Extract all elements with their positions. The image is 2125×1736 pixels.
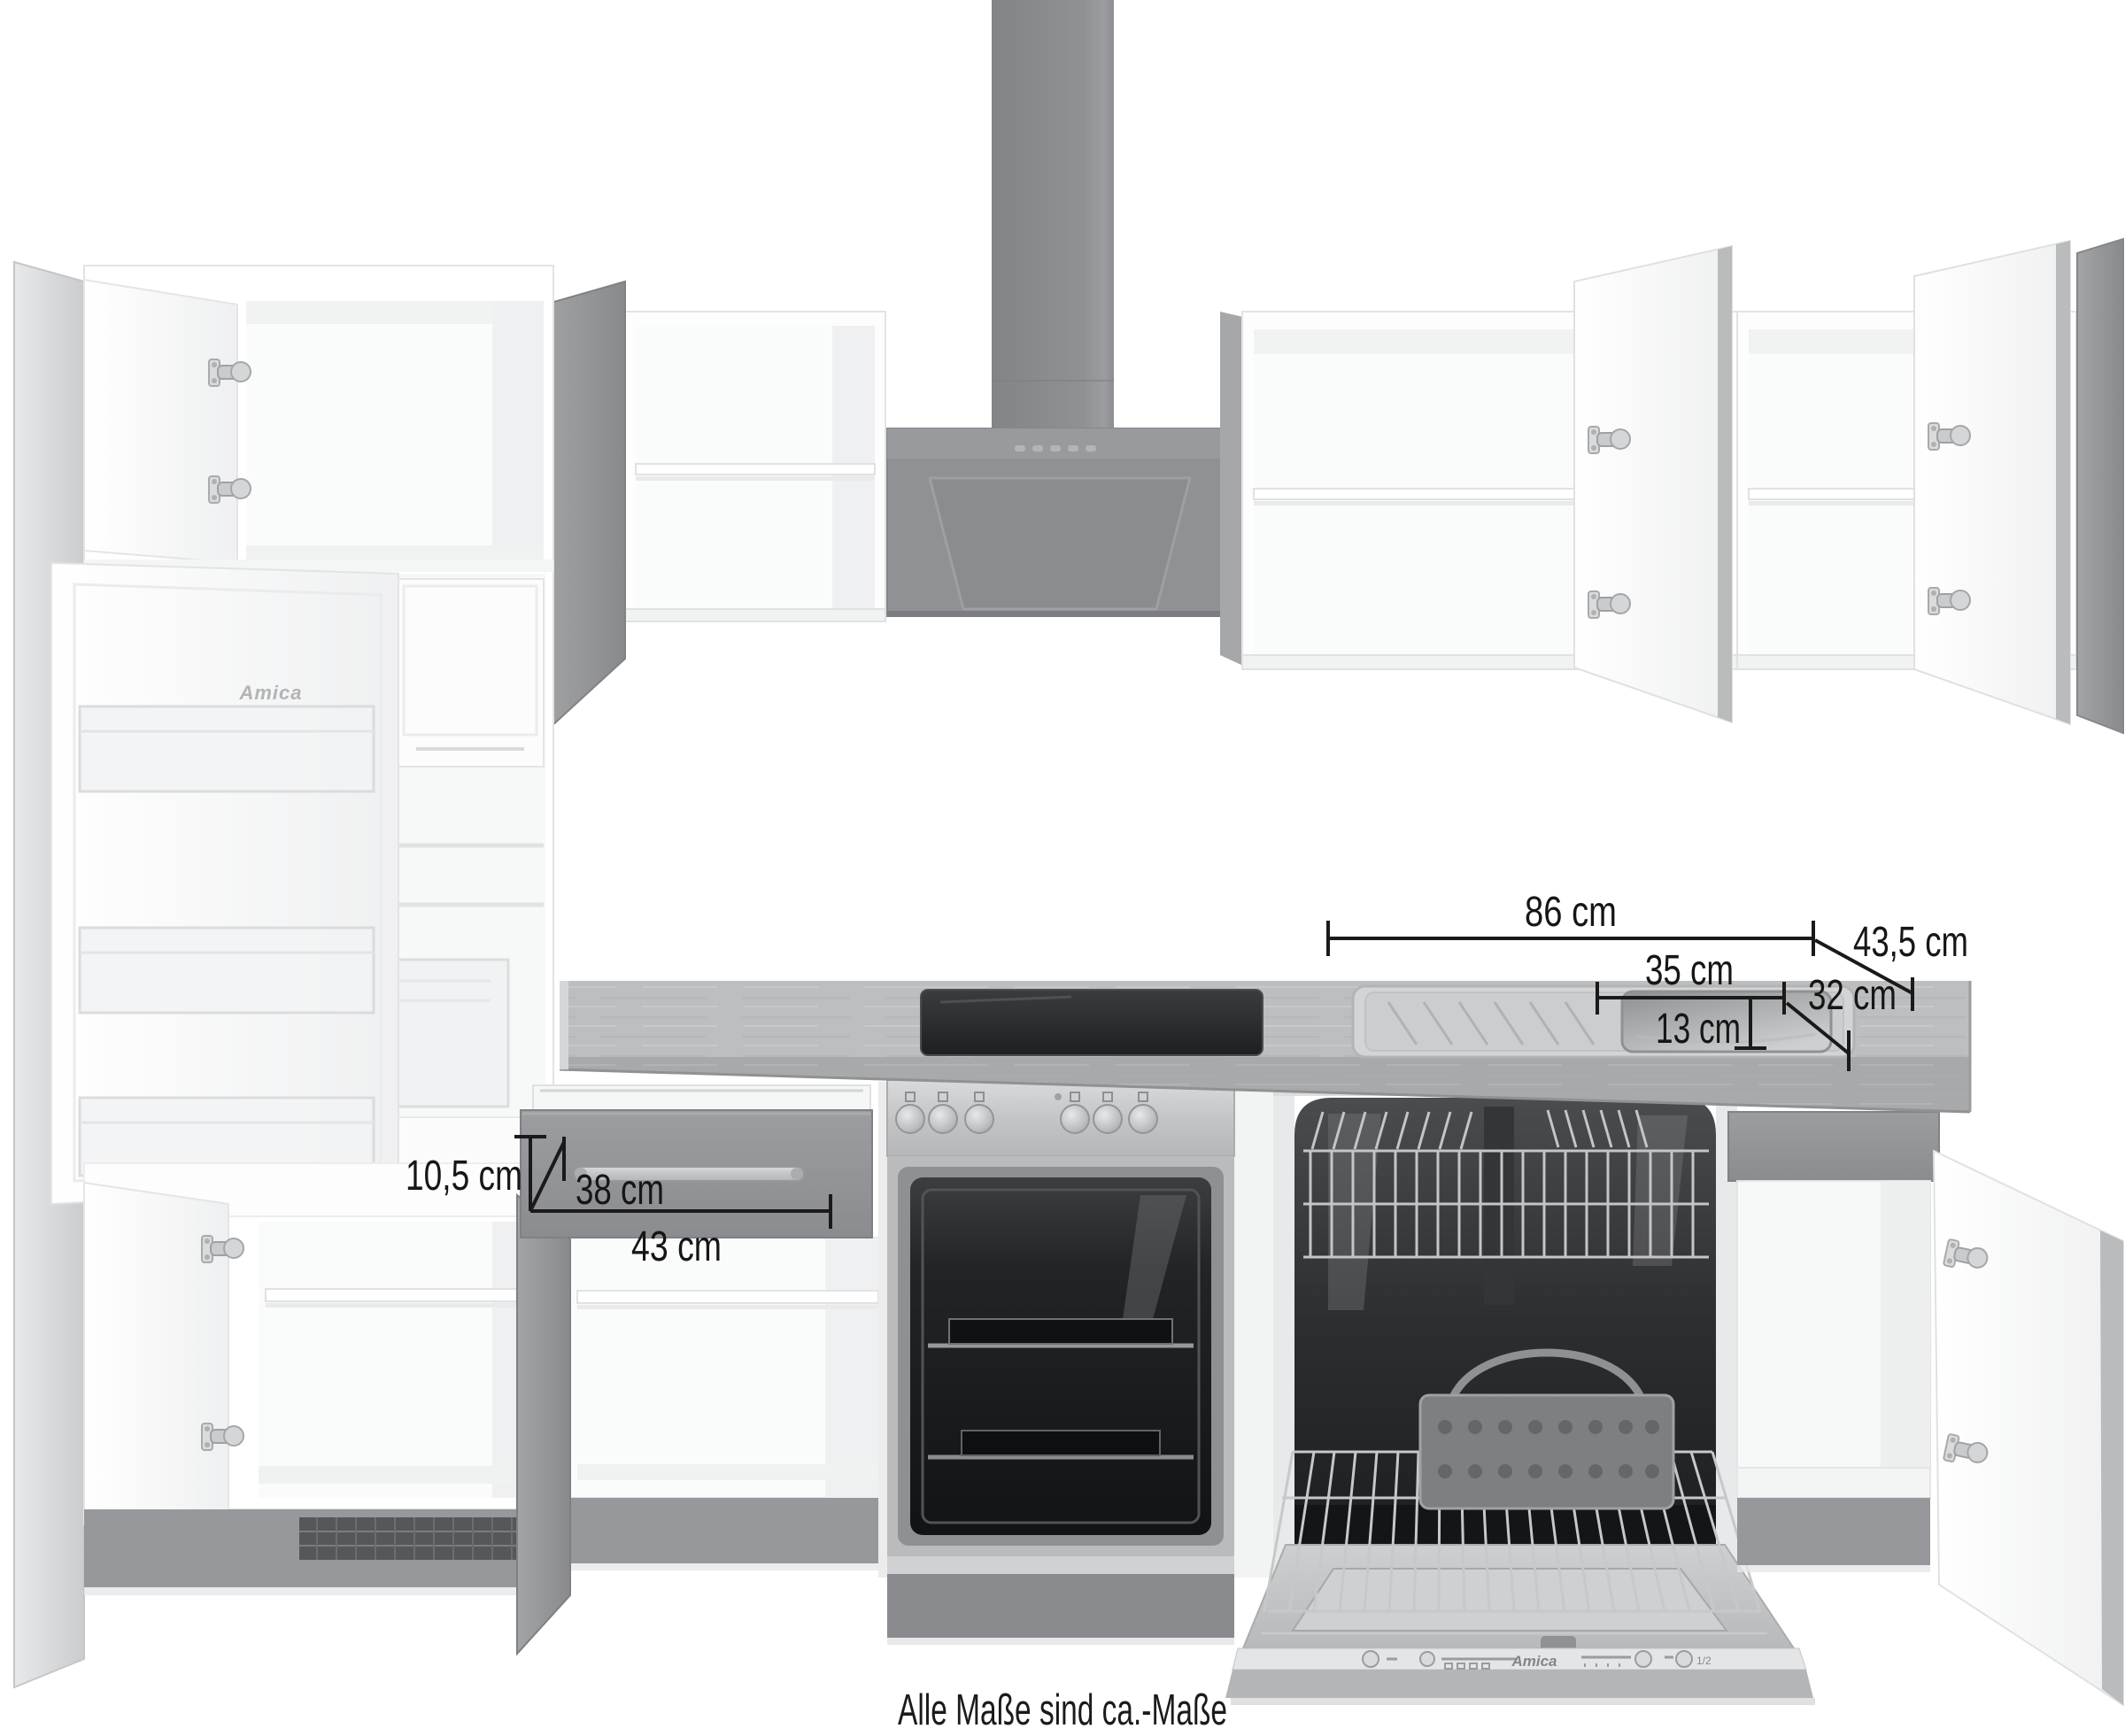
sink-cabinet-plinth [1737, 1498, 1930, 1565]
oven-sill [887, 1556, 1234, 1574]
base-cabinet-floor [577, 1464, 878, 1480]
sink-cabinet-shading [1881, 1181, 1930, 1468]
top-compartment-shading [492, 301, 544, 559]
oven-knob [1061, 1105, 1089, 1133]
lower-compartment-shelf [266, 1289, 544, 1301]
base-cabinet-door-gray-open [517, 1195, 570, 1654]
wall-cabinet-end-panel-gray [2077, 239, 2123, 733]
wall-cabinet-b-shelf [1749, 489, 1926, 499]
sink-cabinet-floor [1737, 1468, 1930, 1498]
lower-compartment-floor [259, 1466, 544, 1484]
fridge-brand-logo: Amica [238, 682, 302, 704]
floor-shadow [887, 1638, 1234, 1645]
power-button [1363, 1651, 1379, 1667]
worktop-left-cap [560, 981, 568, 1069]
cabinet-b-ceiling [1749, 329, 1926, 354]
door-bottom-edge [1225, 1670, 1813, 1698]
dim-handle-width-label: 38 cm [576, 1167, 664, 1214]
hood-bottom-edge [887, 611, 1232, 617]
hood-filter-panel [930, 478, 1190, 609]
kitchen-scene: Amica [0, 0, 2125, 1736]
kitchen-product-image: Amica [0, 0, 2125, 1736]
fridge: Amica [51, 563, 545, 1204]
cabinet-side-gray [1220, 312, 1243, 666]
wall-cabinet-left-shelf [636, 464, 875, 475]
dim-drawer-height-label: 10,5 cm [406, 1153, 522, 1200]
tall-unit: Amica [14, 262, 553, 1687]
base-cabinet-plinth [567, 1498, 878, 1563]
wall-cabinet-b-door [1914, 241, 2070, 724]
baking-tray-lower [962, 1431, 1160, 1455]
half-load-label: 1/2 [1696, 1655, 1712, 1667]
baking-tray-upper [949, 1319, 1172, 1344]
oven-plinth [887, 1574, 1234, 1638]
shelf-shadow [577, 1305, 878, 1309]
program-button [1420, 1652, 1434, 1666]
cabinet-partition [1234, 1082, 1275, 1578]
freezer-compartment [397, 579, 544, 767]
shelf-shadow [1254, 501, 1574, 505]
shelf-shadow [636, 476, 875, 481]
handle-end [791, 1168, 803, 1180]
sink-cabinet-front-panel-gray [1728, 1112, 1939, 1181]
half-load-button [1676, 1651, 1692, 1667]
oven-knob [1129, 1105, 1157, 1133]
fridge-door-bins [80, 706, 374, 1176]
wall-cabinet-a-shelf [1254, 489, 1574, 499]
dim-worktop-depth-label: 43,5 cm [1853, 919, 1968, 966]
dim-basin-depth-label: 32 cm [1808, 972, 1897, 1019]
delay-button [1635, 1651, 1651, 1667]
oven-knob [896, 1105, 924, 1133]
dim-worktop-width-label: 86 cm [1525, 889, 1617, 936]
wall-cabinets-right [1220, 239, 2123, 733]
top-compartment-door [84, 280, 237, 563]
oven-knob [929, 1105, 957, 1133]
door-a-edge-band [1718, 246, 1732, 722]
sink-door-edge-band [2100, 1231, 2123, 1705]
floor-shadow [84, 1587, 553, 1595]
base-cabinet-shelf [577, 1291, 878, 1303]
indicator-light [1055, 1093, 1062, 1100]
dim-basin-inner-depth-label: 13 cm [1656, 1006, 1741, 1053]
oven [878, 1080, 1275, 1645]
floor-shadow [1737, 1565, 1930, 1572]
top-compartment-bottom [246, 545, 544, 559]
spray-tower [1484, 1107, 1514, 1305]
dim-basin-width-label: 35 cm [1645, 947, 1734, 994]
tub-bottom-shadow [1294, 1505, 1716, 1545]
wall-cabinet-a-door [1574, 246, 1732, 722]
caption-text: Alle Maße sind ca.-Maße [898, 1686, 1227, 1734]
dishwasher-brand-logo: Amica [1511, 1653, 1557, 1670]
dishwasher: 1/2 Amica [1225, 1082, 1815, 1705]
hood-top-band [887, 428, 1232, 459]
floor-shadow [567, 1563, 878, 1570]
wall-cabinet-left-bottom [624, 609, 885, 621]
dim-drawer-width-label: 43 cm [631, 1223, 722, 1270]
drawer-box [533, 1085, 870, 1110]
oven-knob [965, 1105, 993, 1133]
base-cabinet-shading [825, 1238, 878, 1498]
lower-compartment-door [84, 1183, 228, 1524]
floor-shadow [1231, 1698, 1815, 1705]
drawer-base-cabinet [517, 1085, 878, 1654]
fridge-vent-grille [299, 1517, 531, 1560]
door-b-edge-band [2056, 241, 2070, 724]
shelf-shadow [266, 1303, 544, 1308]
shelf-shadow [1749, 501, 1926, 505]
cabinet-a-ceiling [1254, 329, 1574, 354]
oven-knob [1093, 1105, 1122, 1133]
hood-chimney [992, 0, 1114, 430]
